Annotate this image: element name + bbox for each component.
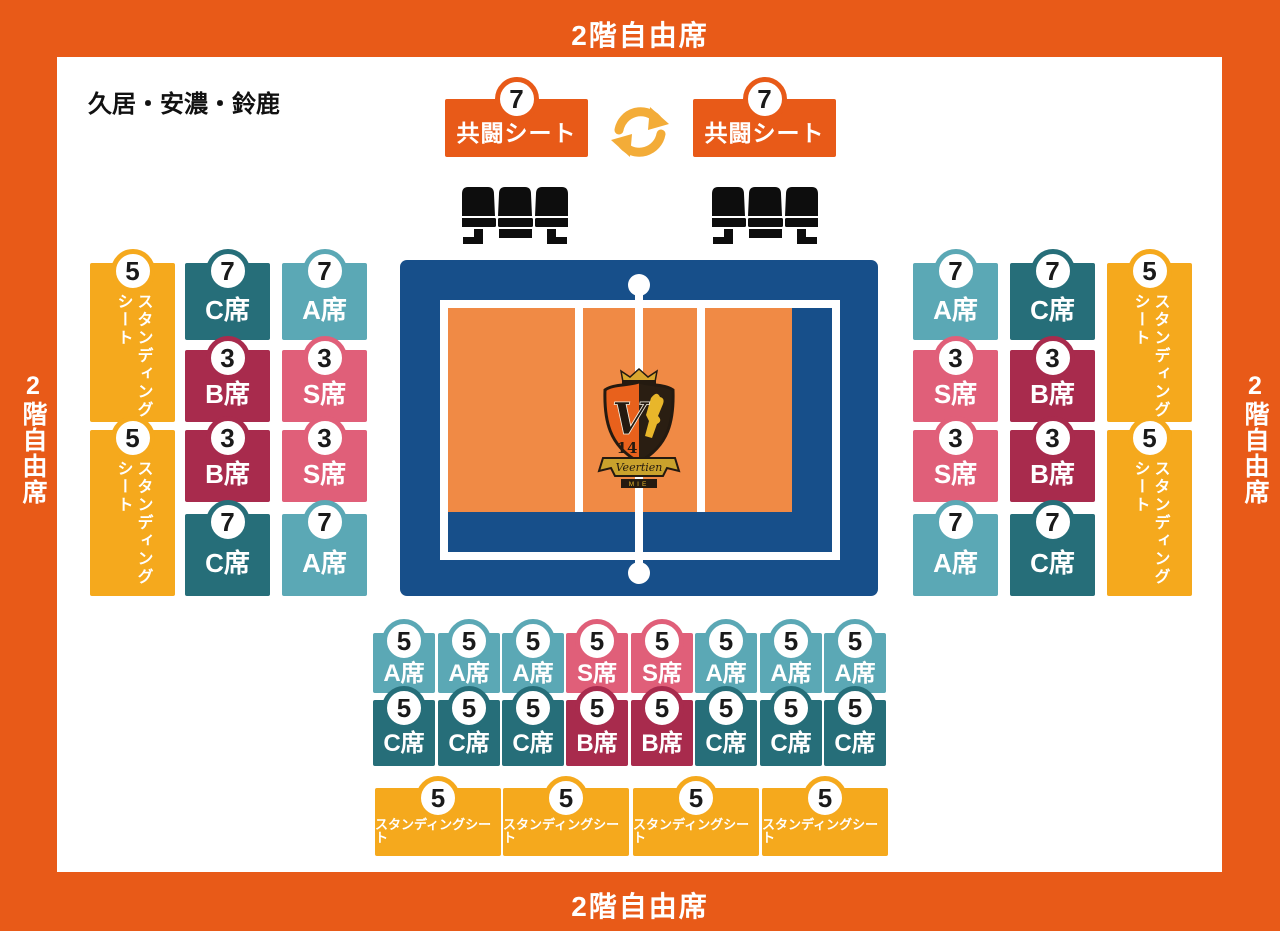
seat-block-a: 7 A席 (282, 263, 367, 340)
seat-block-c: 5 C席 (824, 700, 886, 766)
seat-block-s: 3 S席 (282, 350, 367, 422)
free-seat-label-top: 2階自由席 (0, 14, 1280, 54)
capacity-badge: 5 (511, 686, 555, 730)
seat-block-c: 7 C席 (185, 514, 270, 596)
capacity-badge: 5 (769, 686, 813, 730)
seat-block-standing: 5 スタンディングシート (503, 788, 629, 856)
capacity-badge: 5 (640, 686, 684, 730)
kyoto-seat-right: 7 共闘シート (693, 99, 836, 157)
seat-label: スタンディングシート (503, 818, 629, 856)
seat-block-c: 5 C席 (373, 700, 435, 766)
logo-initial: V (612, 394, 650, 445)
net-post-dot-top (628, 274, 650, 296)
capacity-badge: 5 (575, 686, 619, 730)
capacity-badge: 5 (447, 619, 491, 663)
seat-block-b: 3 B席 (1010, 350, 1095, 422)
capacity-badge: 3 (303, 416, 347, 460)
capacity-badge: 3 (1031, 336, 1075, 380)
capacity-badge: 7 (495, 77, 539, 121)
seat-block-s: 3 S席 (282, 430, 367, 502)
area-label: 久居・安濃・鈴鹿 (88, 84, 280, 119)
free-seat-label-bottom: 2階自由席 (0, 885, 1280, 925)
free-seat-label-right: 2階自由席 (1237, 372, 1273, 505)
team-logo: V 14 Veertien MIE (589, 368, 689, 490)
capacity-badge: 7 (934, 500, 978, 544)
capacity-badge: 3 (303, 336, 347, 380)
kyoto-seat-left: 7 共闘シート (445, 99, 588, 157)
seat-block-c: 7 C席 (185, 263, 270, 340)
bench-seats-icon-right (712, 187, 818, 250)
logo-name: Veertien (616, 461, 663, 474)
capacity-badge: 3 (1031, 416, 1075, 460)
capacity-badge: 3 (934, 336, 978, 380)
net-post-dot-bottom (628, 562, 650, 584)
capacity-badge: 5 (674, 776, 718, 820)
seat-block-b: 3 B席 (185, 350, 270, 422)
seat-block-a: 5 A席 (695, 633, 757, 693)
seat-block-s: 3 S席 (913, 350, 998, 422)
capacity-badge: 5 (833, 686, 877, 730)
capacity-badge: 5 (382, 686, 426, 730)
seat-block-a: 5 A席 (760, 633, 822, 693)
seat-block-standing: 5 スタンディング シート (90, 263, 175, 422)
seat-block-standing: 5 スタンディングシート (762, 788, 888, 856)
capacity-badge: 5 (1128, 249, 1172, 293)
seat-block-a: 7 A席 (913, 263, 998, 340)
seat-block-a: 5 A席 (373, 633, 435, 693)
seat-block-c: 7 C席 (1010, 514, 1095, 596)
capacity-badge: 3 (934, 416, 978, 460)
capacity-badge: 5 (640, 619, 684, 663)
seat-block-standing: 5 スタンディング シート (1107, 263, 1192, 422)
capacity-badge: 5 (544, 776, 588, 820)
capacity-badge: 7 (1031, 249, 1075, 293)
capacity-badge: 5 (447, 686, 491, 730)
capacity-badge: 5 (704, 619, 748, 663)
seat-block-s: 5 S席 (631, 633, 693, 693)
logo-region: MIE (629, 481, 650, 488)
capacity-badge: 5 (704, 686, 748, 730)
seat-block-c: 5 C席 (438, 700, 500, 766)
seat-block-standing: 5 スタンディング シート (1107, 430, 1192, 596)
capacity-badge: 7 (934, 249, 978, 293)
capacity-badge: 7 (1031, 500, 1075, 544)
seat-block-s: 3 S席 (913, 430, 998, 502)
attack-line-left (575, 308, 583, 512)
capacity-badge: 7 (303, 500, 347, 544)
seat-label: スタンディングシート (375, 818, 501, 856)
seat-block-s: 5 S席 (566, 633, 628, 693)
swap-arrows-icon (607, 99, 673, 170)
capacity-badge: 7 (206, 249, 250, 293)
seat-block-standing: 5 スタンディングシート (633, 788, 759, 856)
seat-block-b: 5 B席 (631, 700, 693, 766)
capacity-badge: 5 (111, 249, 155, 293)
capacity-badge: 5 (769, 619, 813, 663)
seat-block-standing: 5 スタンディングシート (375, 788, 501, 856)
capacity-badge: 5 (833, 619, 877, 663)
seat-block-c: 5 C席 (760, 700, 822, 766)
seat-block-a: 7 A席 (282, 514, 367, 596)
seat-block-b: 3 B席 (1010, 430, 1095, 502)
seat-block-a: 7 A席 (913, 514, 998, 596)
seat-block-c: 5 C席 (695, 700, 757, 766)
attack-line-right (697, 308, 705, 512)
seat-label: スタンディングシート (633, 818, 759, 856)
seat-block-a: 5 A席 (824, 633, 886, 693)
capacity-badge: 5 (1128, 416, 1172, 460)
seat-block-b: 5 B席 (566, 700, 628, 766)
logo-number: 14 (617, 439, 638, 457)
bench-seats-icon-left (462, 187, 568, 250)
seat-block-a: 5 A席 (502, 633, 564, 693)
seat-block-b: 3 B席 (185, 430, 270, 502)
capacity-badge: 5 (803, 776, 847, 820)
seat-block-a: 5 A席 (438, 633, 500, 693)
capacity-badge: 7 (303, 249, 347, 293)
capacity-badge: 3 (206, 336, 250, 380)
capacity-badge: 5 (575, 619, 619, 663)
capacity-badge: 5 (511, 619, 555, 663)
free-seat-label-left: 2階自由席 (15, 372, 51, 505)
seat-block-c: 7 C席 (1010, 263, 1095, 340)
seat-block-standing: 5 スタンディング シート (90, 430, 175, 596)
capacity-badge: 5 (416, 776, 460, 820)
seat-label: スタンディングシート (762, 818, 888, 856)
seat-block-c: 5 C席 (502, 700, 564, 766)
capacity-badge: 3 (206, 416, 250, 460)
volleyball-court: V 14 Veertien MIE (400, 260, 878, 596)
capacity-badge: 5 (111, 416, 155, 460)
capacity-badge: 7 (743, 77, 787, 121)
capacity-badge: 7 (206, 500, 250, 544)
capacity-badge: 5 (382, 619, 426, 663)
